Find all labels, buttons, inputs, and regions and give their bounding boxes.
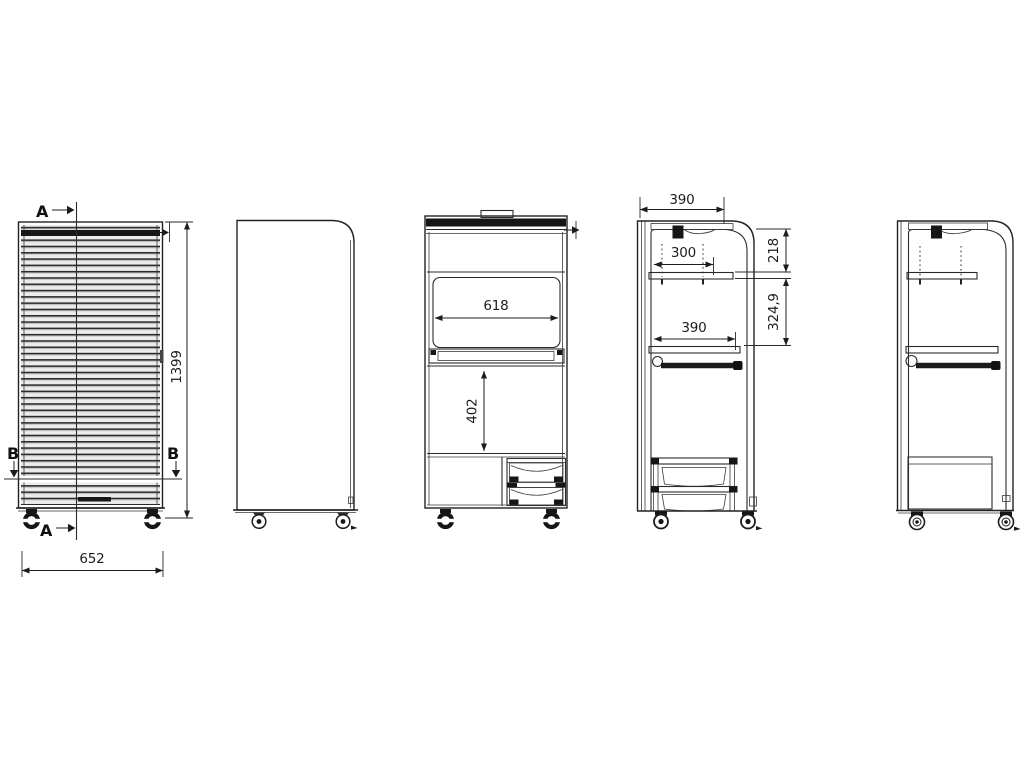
section-b-label-right: B [167, 444, 179, 463]
dim-opening-height-group: 402 [465, 371, 485, 451]
shutter-top-rail [21, 230, 160, 236]
drawing-canvas: A A B B 1399 652 [0, 0, 1024, 768]
technical-drawing-page: A A B B 1399 652 [0, 0, 1024, 768]
section-a-label-bottom: A [40, 521, 53, 540]
pullout-shelf-section [649, 347, 740, 354]
section-inner-outline [651, 230, 747, 512]
shutter-top-marker-arrow [162, 229, 169, 237]
shelf-section-b [907, 273, 977, 280]
view-front-closed: A A B B 1399 652 [4, 202, 193, 577]
top-panel-hatched [651, 224, 733, 230]
view-section-b [896, 221, 1021, 531]
caster-front-right [143, 509, 162, 527]
section-a-arrow-bottom [68, 524, 76, 532]
section-b-inner-outline [909, 230, 1007, 512]
dim-tray-depth-group: 390 [654, 320, 736, 350]
section-b-label-left: B [7, 444, 19, 463]
shutter-stop-block-b [931, 226, 942, 239]
rear-latch [750, 497, 757, 506]
tambour-slats [21, 225, 160, 505]
dim-overall-width-group: 652 [22, 551, 163, 577]
caster-section-left [654, 512, 668, 529]
bottom-box [908, 457, 992, 509]
section-a-arrow-top [67, 206, 75, 214]
top-panel-hatched-b [909, 223, 988, 230]
keyboard-tray [429, 349, 564, 363]
caster-open-left [436, 509, 455, 527]
dim-tray-depth: 390 [681, 320, 706, 336]
caster-sectionb-left [910, 512, 925, 530]
section-a-label-top: A [36, 202, 49, 221]
dim-depth-top-group: 390 [640, 192, 724, 224]
dim-opening-height: 402 [465, 398, 481, 423]
rolled-shutter-band [426, 219, 566, 227]
caster-front-left [22, 509, 41, 527]
caster-foot [351, 526, 358, 530]
view-section-a: 390 300 218 324,9 390 [637, 192, 791, 530]
side-outline [237, 221, 354, 511]
dim-top-to-shelf-group: 218 [735, 229, 791, 272]
drawer-unit-section [651, 458, 737, 511]
dim-depth-top: 390 [669, 192, 694, 208]
caster-open-right [542, 509, 561, 527]
shelf-section [649, 273, 733, 280]
view-front-open: 618 402 [425, 211, 580, 528]
tambour-curl-b [938, 230, 972, 234]
pullout-shelf-section-b [906, 347, 998, 354]
dim-overall-width: 652 [79, 551, 104, 567]
dim-shelf-to-tray-group: 324,9 [735, 279, 791, 346]
tambour-curl [684, 230, 715, 234]
slide-rod [653, 357, 743, 371]
section-b-arrow-left [10, 470, 18, 478]
dim-shelf-to-tray: 324,9 [766, 293, 782, 331]
caster-side-right [336, 513, 357, 530]
caster-sectionb-right [999, 512, 1021, 531]
drawer-unit-front [507, 459, 566, 506]
dim-opening-width: 618 [483, 298, 508, 314]
dim-top-to-shelf: 218 [766, 238, 782, 263]
dim-shelf-depth: 300 [671, 245, 696, 261]
slide-rod-b [906, 356, 1001, 371]
dim-opening-width-group: 618 [435, 298, 558, 318]
shutter-handle [78, 497, 111, 502]
dim-overall-height: 1399 [169, 350, 185, 384]
section-b-arrow-right [172, 470, 180, 478]
lock [160, 350, 164, 363]
caster-section-right [741, 512, 763, 531]
shutter-stop-block [673, 226, 684, 239]
open-cabinet-outline [425, 216, 567, 508]
caster-side-left [252, 513, 266, 529]
view-side-closed [233, 221, 358, 530]
